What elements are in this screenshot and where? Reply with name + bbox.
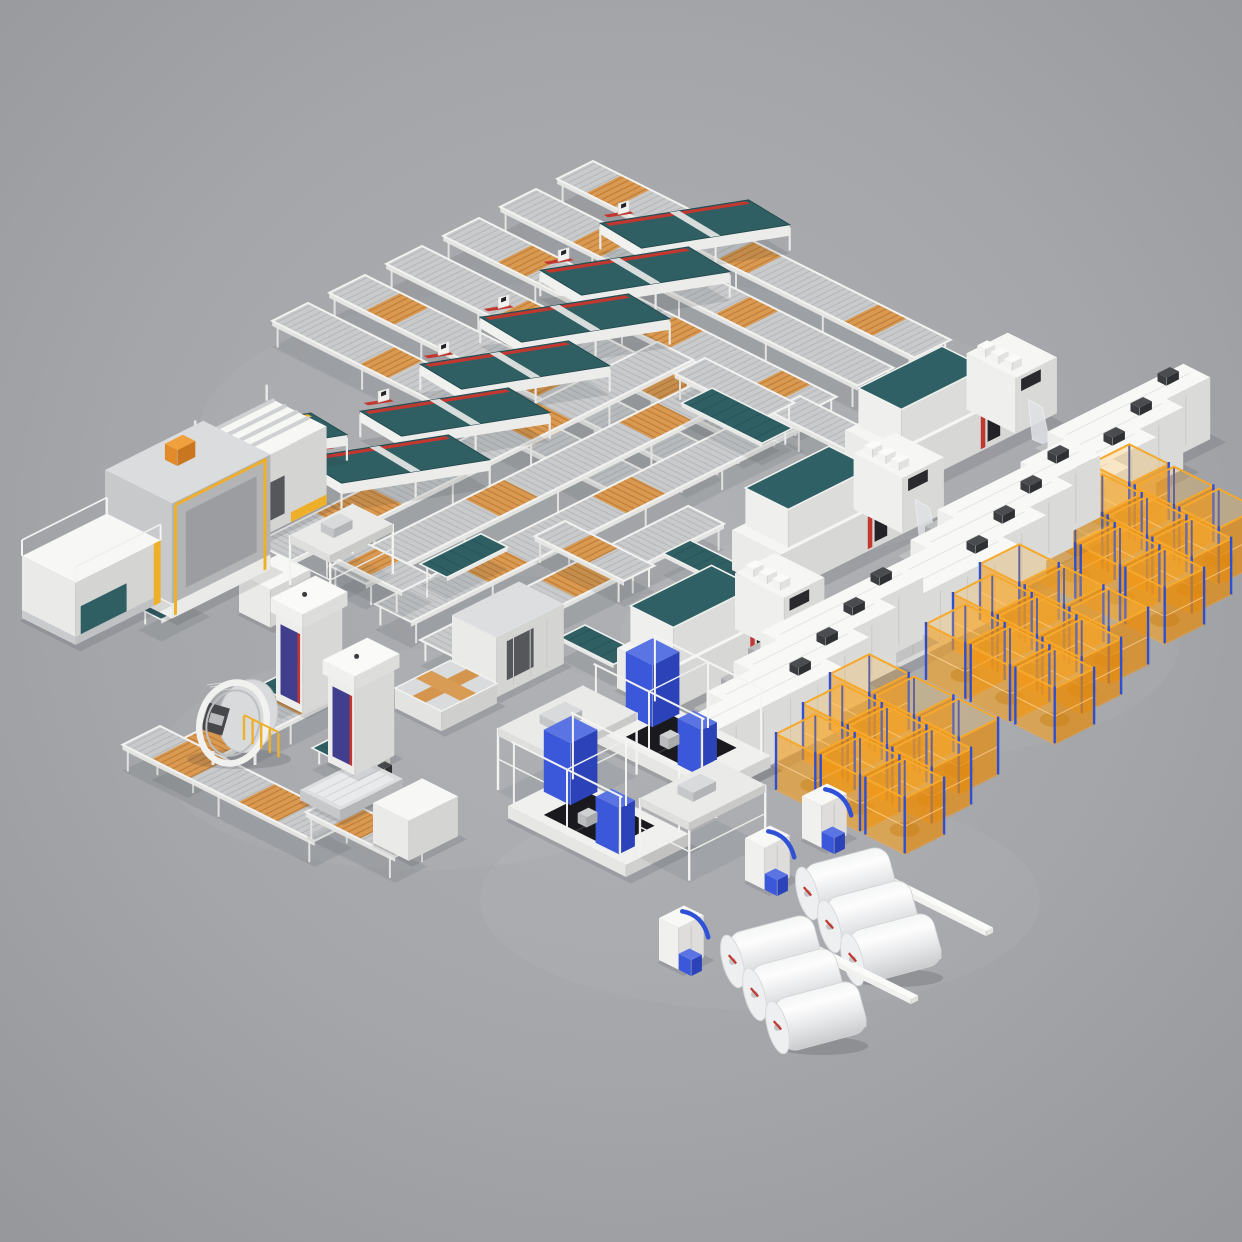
panel-portal-2 xyxy=(323,638,404,782)
production-line-isometric-render xyxy=(0,0,1242,1242)
factory-render-root xyxy=(0,0,1242,1242)
